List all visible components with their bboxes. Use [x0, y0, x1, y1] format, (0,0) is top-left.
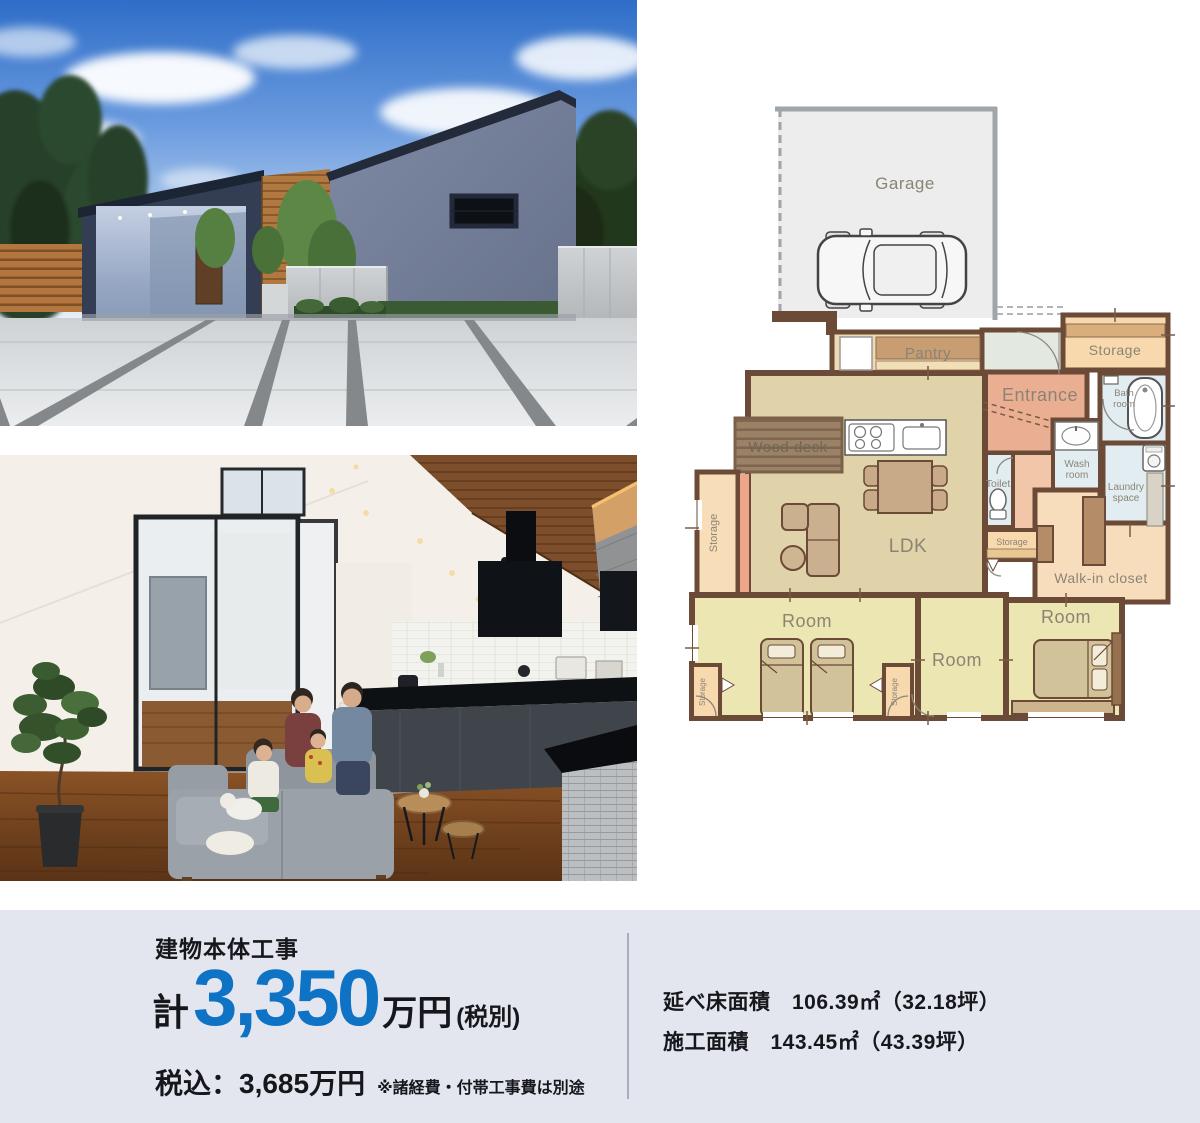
garage-label: Garage	[875, 174, 935, 193]
laundry-label-1: Laundry	[1108, 482, 1144, 493]
room-2-label: Room	[932, 650, 982, 670]
wash-room-label-2: room	[1066, 470, 1089, 481]
wash-basin-icon	[1055, 422, 1098, 450]
kitchen-island	[845, 420, 946, 455]
room-3-label: Room	[1041, 607, 1091, 627]
car-icon	[818, 229, 966, 311]
storage-label-top-right: Storage	[1089, 342, 1142, 358]
right-concrete-wall	[558, 246, 637, 320]
exterior-photo	[0, 0, 637, 426]
washer-icon	[1143, 445, 1165, 471]
wardrobe	[1083, 497, 1105, 565]
price-prefix: 計	[152, 982, 189, 1036]
wash-room-label-1: Wash	[1064, 459, 1089, 470]
storage-label-bottom-mid: Storage	[890, 677, 899, 706]
panel-divider	[627, 933, 629, 1099]
walk-in-closet-label: Walk-in closet	[1054, 570, 1148, 586]
storage-label-mid: Storage	[996, 537, 1028, 547]
info-panel: 建物本体工事 計 3,350 万円 (税別) 税込：3,685万円 ※諸経費・付…	[0, 910, 1200, 1123]
toilet-icon	[990, 489, 1006, 519]
construction-area: 施工面積 143.45㎡（43.39坪）	[663, 1026, 979, 1056]
hallway	[982, 330, 1063, 373]
floor-plan: Garage Pantry Storage Entrance Bath room…	[660, 80, 1200, 780]
bath-room-label-2: room	[1113, 399, 1135, 410]
total-floor-area: 延べ床面積 106.39㎡（32.18坪）	[663, 986, 1000, 1016]
room-1-label: Room	[782, 611, 832, 631]
price-tax-label: (税別)	[456, 997, 520, 1032]
wardrobe-2	[1037, 526, 1053, 562]
price-unit: 万円	[382, 985, 452, 1036]
storage-label-bottom-left: Storage	[698, 677, 707, 706]
wood-deck-label: Wood deck	[748, 439, 827, 456]
entrance-label: Entrance	[1002, 385, 1078, 405]
garage-room	[772, 107, 1064, 335]
range-hood	[478, 561, 562, 637]
price-note: ※諸経費・付帯工事費は別途	[377, 1074, 585, 1098]
price-row: 計 3,350 万円 (税別)	[152, 960, 520, 1036]
range-hood-2	[600, 571, 637, 631]
storage-label-left: Storage	[708, 514, 720, 553]
laundry-label-2: space	[1113, 493, 1140, 504]
pantry-label: Pantry	[905, 345, 951, 362]
interior-photo	[0, 455, 637, 881]
price-amount: 3,350	[193, 960, 378, 1036]
ldk-label: LDK	[889, 536, 927, 557]
driveway	[0, 314, 637, 426]
wood-fence	[0, 244, 82, 312]
refrigerator	[840, 337, 872, 370]
page: Garage Pantry Storage Entrance Bath room…	[0, 0, 1200, 1123]
tax-row: 税込：3,685万円 ※諸経費・付帯工事費は別途	[155, 1062, 585, 1102]
double-bed	[1034, 633, 1122, 705]
bath-room-label-1: Bath	[1114, 388, 1134, 399]
tax-included: 税込：3,685万円	[155, 1062, 365, 1102]
toilet-label: Toilet	[986, 478, 1011, 490]
